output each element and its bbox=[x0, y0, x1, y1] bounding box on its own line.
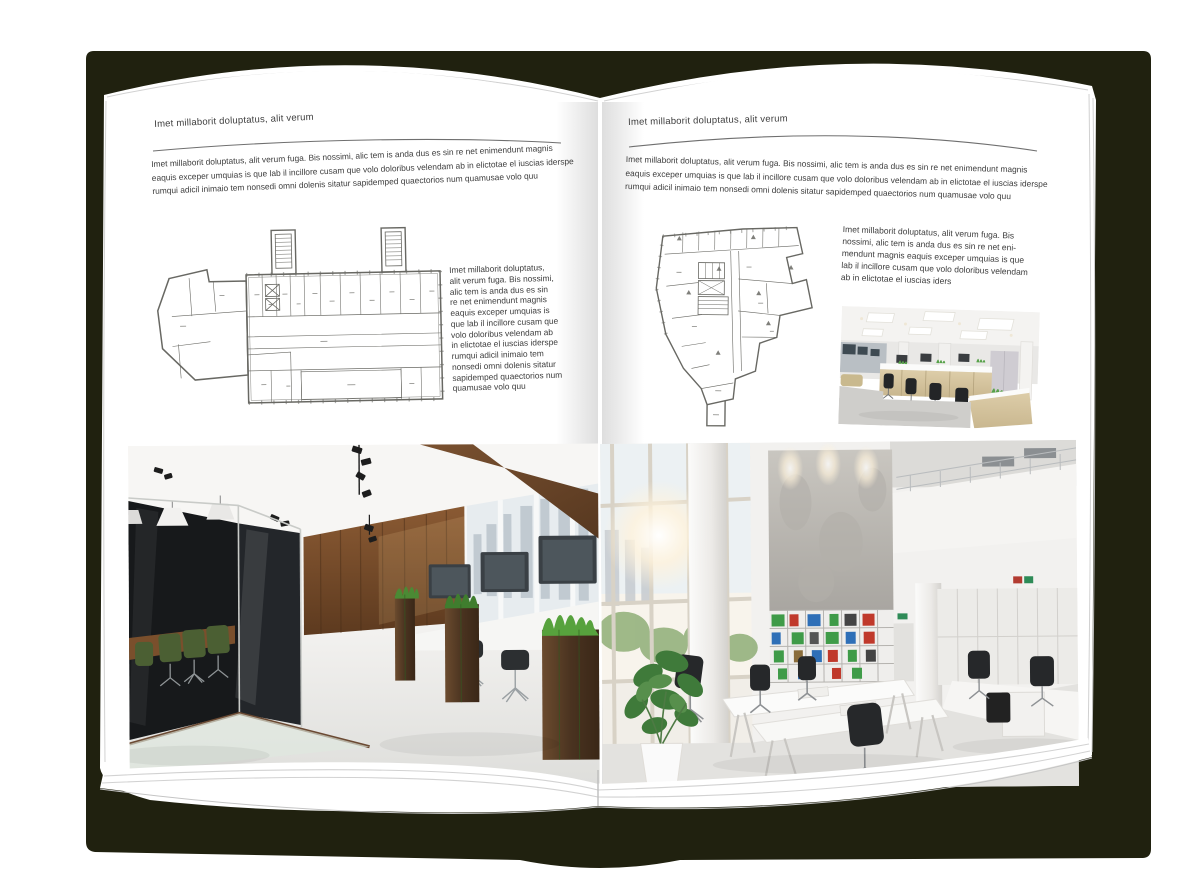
floor-plan-right bbox=[645, 222, 837, 429]
right-page-caption: Imet millaborit doluptatus, alit verum f… bbox=[841, 223, 1045, 291]
office-photo-right bbox=[600, 440, 1079, 790]
floor-plan-left bbox=[148, 221, 452, 427]
office-photo-left bbox=[128, 444, 600, 786]
office-photo-small bbox=[838, 306, 1040, 430]
left-page-caption: Imet millaborit doluptatus, alit verum f… bbox=[449, 261, 571, 393]
magazine-mockup: Imet millaborit doluptatus, alit verum I… bbox=[0, 0, 1200, 891]
